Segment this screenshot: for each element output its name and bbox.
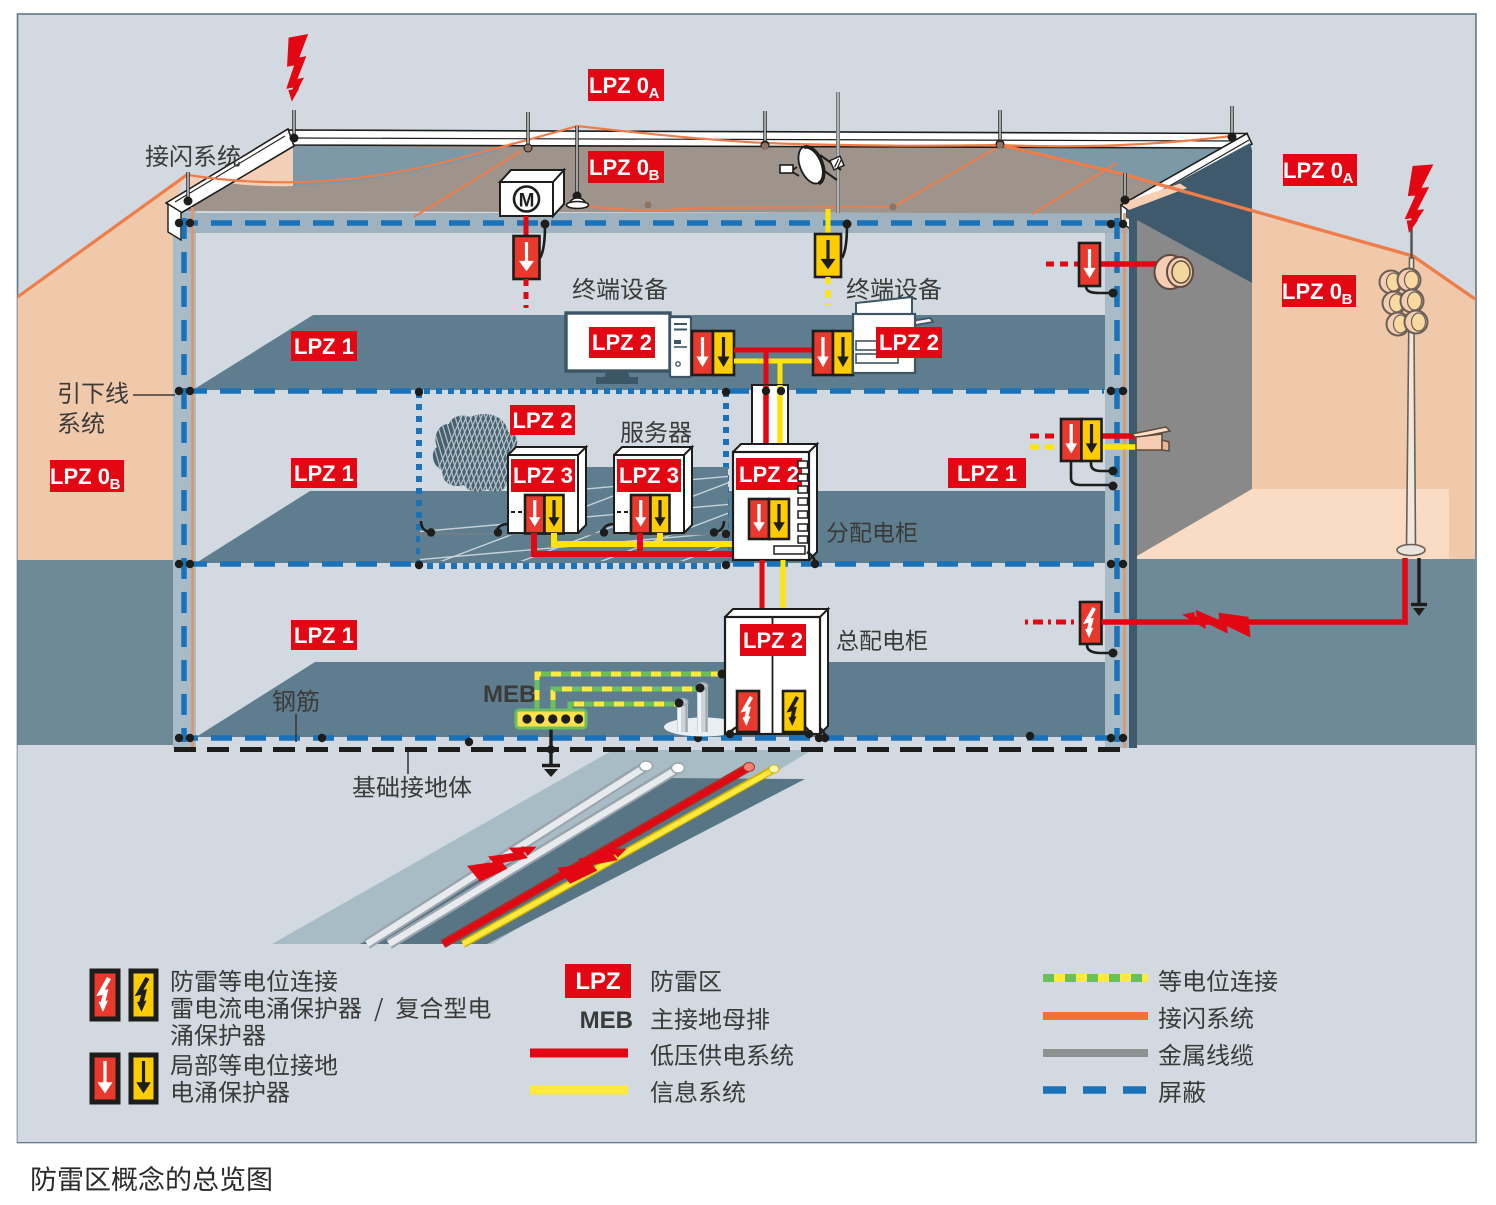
svg-text:LPZ 0: LPZ 0	[50, 464, 110, 489]
svg-text:MEB: MEB	[580, 1007, 633, 1034]
svg-text:B: B	[649, 167, 660, 184]
svg-text:LPZ 0: LPZ 0	[1283, 158, 1343, 183]
svg-text:B: B	[110, 476, 121, 493]
svg-text:LPZ 2: LPZ 2	[743, 628, 803, 653]
svg-text:LPZ 1: LPZ 1	[294, 461, 354, 486]
svg-text:M: M	[519, 191, 535, 212]
svg-text:LPZ 2: LPZ 2	[739, 462, 799, 487]
svg-text:LPZ 0: LPZ 0	[589, 73, 649, 98]
svg-text:LPZ 2: LPZ 2	[592, 330, 652, 355]
svg-text:LPZ 1: LPZ 1	[294, 623, 354, 648]
svg-text:LPZ 2: LPZ 2	[879, 330, 939, 355]
svg-text:LPZ 0: LPZ 0	[1282, 279, 1342, 304]
svg-text:LPZ: LPZ	[575, 968, 620, 995]
svg-text:LPZ 3: LPZ 3	[619, 463, 679, 488]
svg-text:LPZ 2: LPZ 2	[513, 408, 573, 433]
svg-text:A: A	[649, 85, 660, 102]
svg-text:LPZ 3: LPZ 3	[513, 463, 573, 488]
svg-text:LPZ 0: LPZ 0	[589, 155, 649, 180]
svg-text:LPZ 1: LPZ 1	[294, 334, 354, 359]
svg-text:B: B	[1342, 291, 1353, 308]
svg-text:A: A	[1343, 170, 1354, 187]
svg-text:MEB: MEB	[483, 681, 536, 708]
svg-text:LPZ 1: LPZ 1	[957, 461, 1017, 486]
